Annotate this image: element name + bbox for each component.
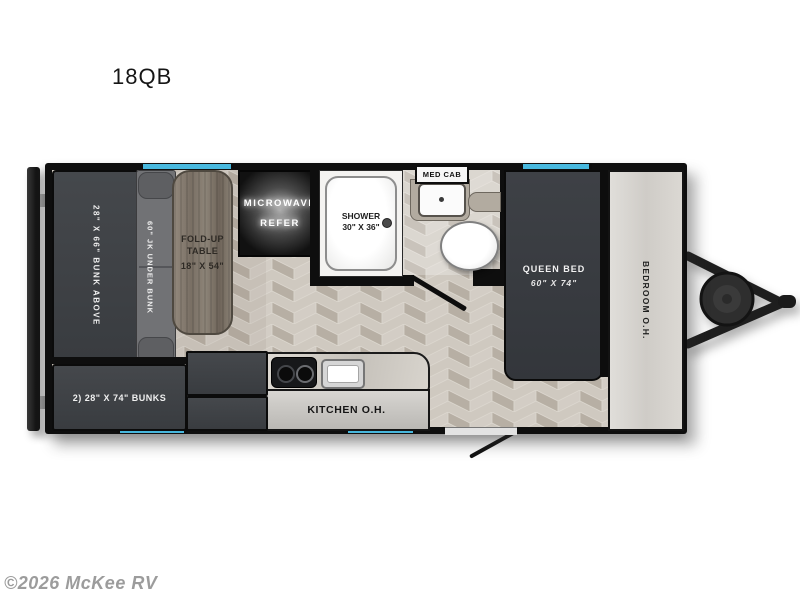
stove xyxy=(271,357,317,388)
bunk-divider-wall xyxy=(52,357,188,364)
storage-cabinet-upper xyxy=(186,351,268,396)
jackknife-sofa: 60" JK UNDER BUNK xyxy=(136,170,176,365)
bunk-beds: 2) 28" X 74" BUNKS xyxy=(52,364,187,431)
floorplan-page: 18QB xyxy=(0,0,800,600)
trailer-body: 28" X 66" BUNK ABOVE 60" JK UNDER BUNK F… xyxy=(45,163,687,434)
entry-door xyxy=(445,427,517,435)
rear-bumper xyxy=(27,167,40,431)
kitchen-sink xyxy=(321,359,365,389)
queen-bed-label: QUEEN BED xyxy=(523,264,586,274)
medicine-cabinet: MED CAB xyxy=(415,165,469,184)
shower: SHOWER 30" X 36" xyxy=(319,170,403,277)
table-label-line2: TABLE xyxy=(187,246,218,256)
shower-label-line2: 30" X 36" xyxy=(328,222,394,233)
fold-up-table: FOLD-UP TABLE 18" X 54" xyxy=(172,170,233,335)
queen-bed-dimensions: 60" X 74" xyxy=(531,278,577,288)
faucet-icon xyxy=(439,197,444,202)
floor-area: 28" X 66" BUNK ABOVE 60" JK UNDER BUNK F… xyxy=(52,170,680,427)
bed-divider-wall xyxy=(600,170,608,377)
queen-bed: QUEEN BED 60" X 74" xyxy=(504,170,604,381)
window-front-top xyxy=(140,164,234,169)
bedroom-overhead-cabinet: BEDROOM O.H. xyxy=(608,170,684,431)
sofa-armrest xyxy=(138,172,174,199)
storage-cabinet-lower xyxy=(186,396,268,431)
front-bunk: 28" X 66" BUNK ABOVE xyxy=(52,170,140,361)
bathroom-sink xyxy=(418,183,466,217)
kitchen-overhead-cabinet: KITCHEN O.H. xyxy=(263,389,430,431)
plan-title: 18QB xyxy=(112,64,172,90)
med-cab-label: MED CAB xyxy=(423,170,462,179)
toilet xyxy=(440,221,499,271)
window-bedroom-top xyxy=(520,164,592,169)
refer-label: REFER xyxy=(260,218,300,229)
vanity-shelf xyxy=(468,192,501,212)
burner-icon xyxy=(277,365,295,383)
burner-icon xyxy=(296,365,314,383)
front-bunk-label: 28" X 66" BUNK ABOVE xyxy=(92,205,101,326)
table-label-line3: 18" X 54" xyxy=(181,261,224,271)
shower-label-line1: SHOWER xyxy=(328,211,394,222)
table-label-line1: FOLD-UP xyxy=(181,234,224,244)
microwave-label: MICROWAVE xyxy=(244,198,316,209)
bedroom-oh-label: BEDROOM O.H. xyxy=(641,261,651,340)
bathroom-wall-left xyxy=(310,170,319,275)
hitch-coupler xyxy=(778,295,796,308)
bunks-label: 2) 28" X 74" BUNKS xyxy=(73,393,167,403)
trailer-tongue xyxy=(676,225,800,375)
sink-basin xyxy=(327,365,359,383)
watermark: ©2026 McKee RV xyxy=(4,573,157,594)
sofa-label: 60" JK UNDER BUNK xyxy=(146,221,155,314)
kitchen-oh-label: KITCHEN O.H. xyxy=(307,404,385,416)
